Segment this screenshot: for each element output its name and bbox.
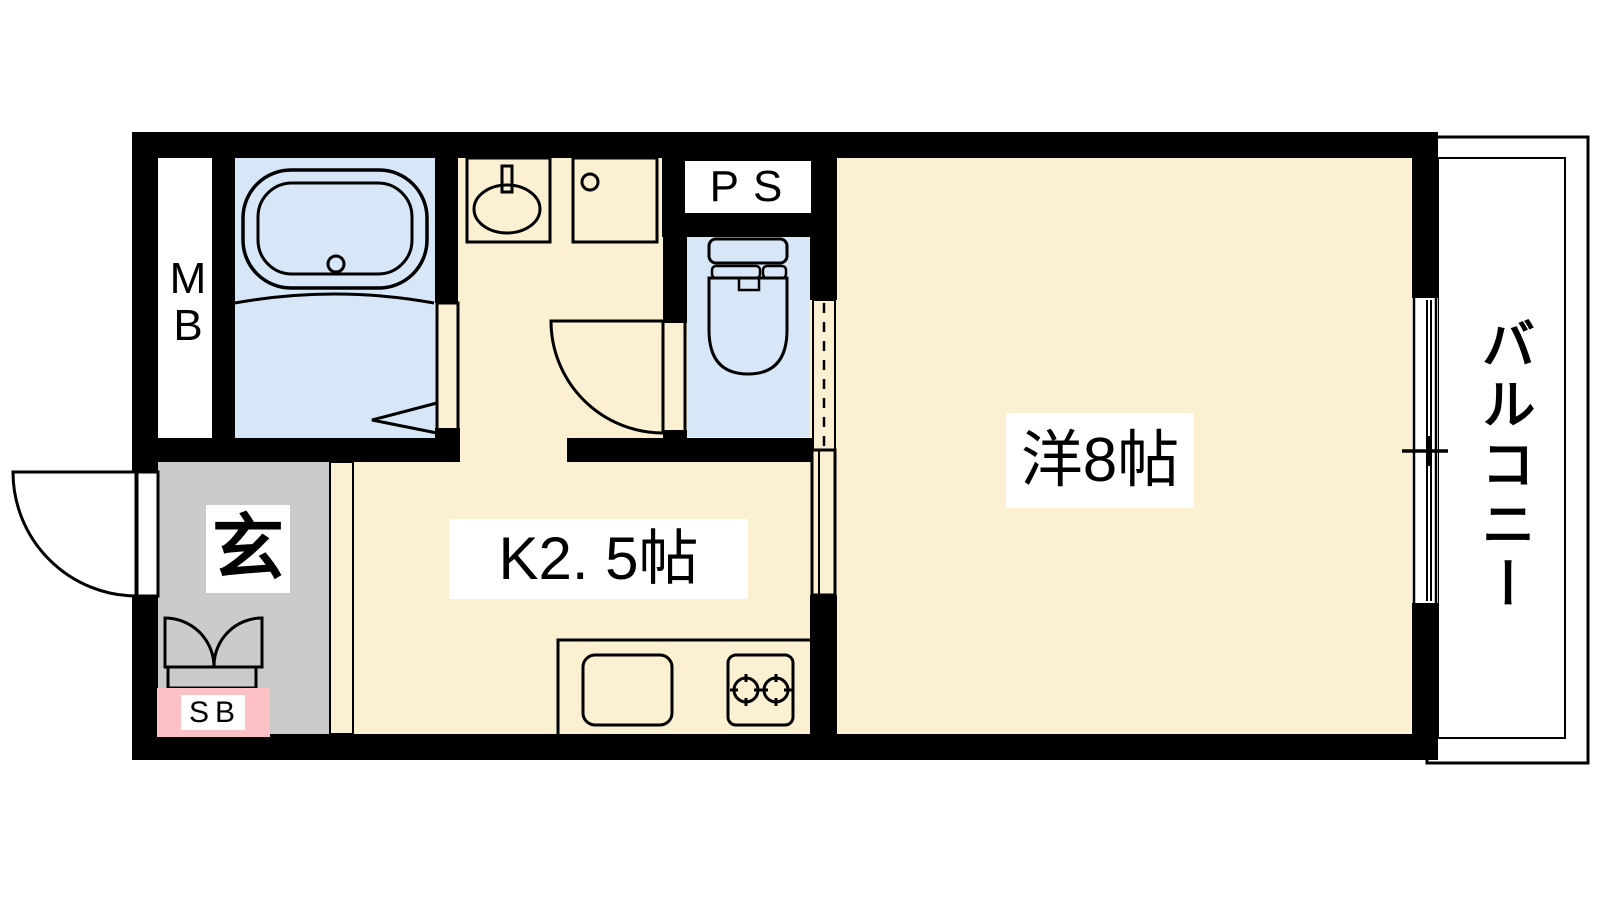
wall-room-divider-lower: [810, 595, 837, 736]
pipe-space-label: PS: [685, 161, 811, 213]
wall-top: [132, 132, 1438, 158]
entrance-door-panel: [136, 472, 158, 596]
wall-right-lower: [1412, 603, 1438, 760]
wall-toilet-left-upper: [663, 237, 687, 323]
wall-room-divider-upper: [810, 158, 837, 300]
entrance-label: 玄: [206, 505, 290, 593]
wall-toilet-left-lower: [663, 430, 687, 462]
entrance-door-swing: [13, 472, 137, 596]
wall-mb-bathroom: [212, 158, 235, 438]
wall-left-upper: [132, 132, 158, 472]
wall-toilet-bottom: [567, 438, 812, 462]
wall-right-upper: [1412, 132, 1438, 298]
meter-box-label: MB: [165, 252, 211, 352]
wall-bottom: [132, 734, 1438, 760]
western-room-label: 洋8帖: [1006, 413, 1194, 508]
wall-bathroom-right: [435, 158, 458, 303]
wall-genkan-top: [132, 438, 460, 462]
balcony-label: バルコニー: [1462, 271, 1544, 661]
floor-plan-drawing: [0, 0, 1600, 900]
kitchen-label: K2. 5帖: [449, 519, 748, 599]
shoebox-label: SB: [181, 695, 245, 730]
wall-left-lower: [132, 596, 158, 760]
floor-plan: MB PS 玄 SB K2. 5帖 洋8帖 バルコニー: [0, 0, 1600, 900]
